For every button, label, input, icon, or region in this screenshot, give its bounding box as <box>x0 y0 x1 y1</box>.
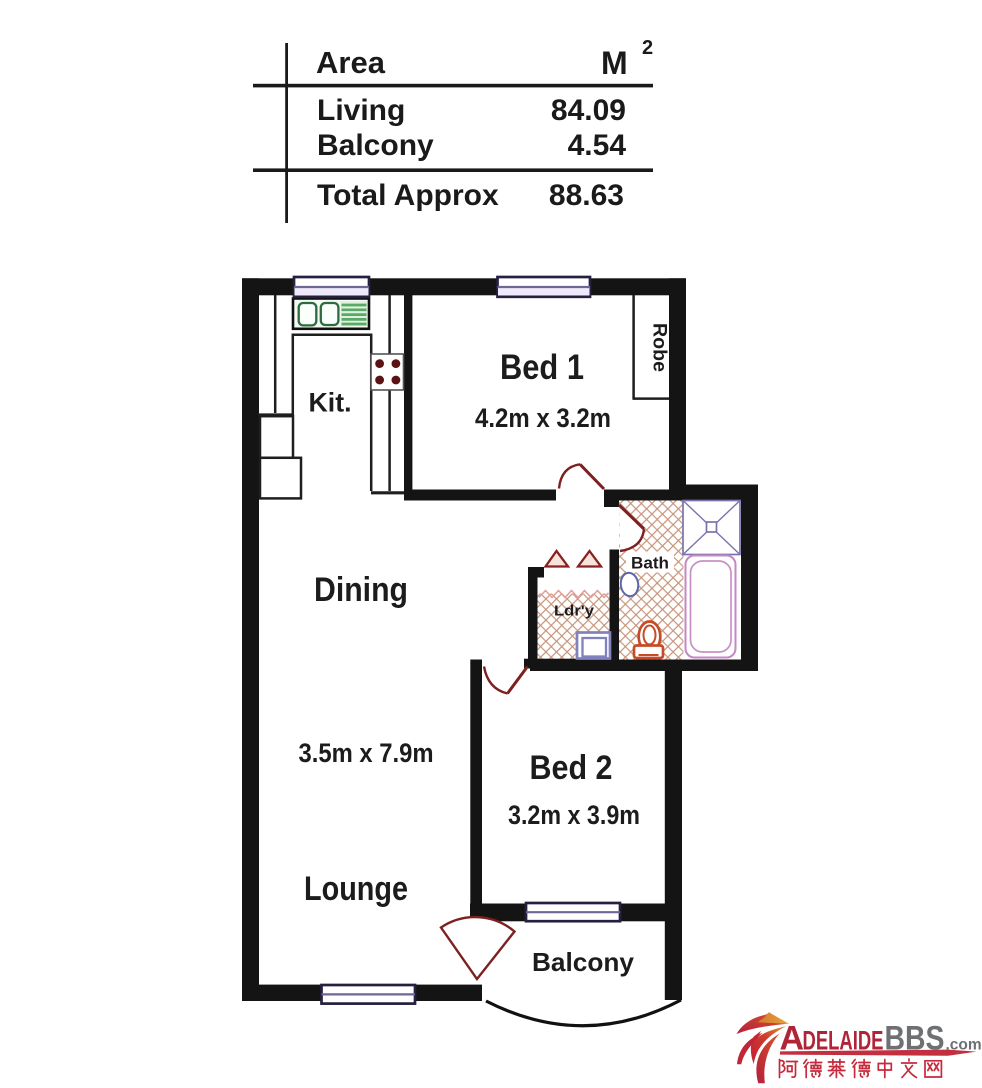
svg-text:Bed 2: Bed 2 <box>530 749 613 787</box>
svg-text:Living: Living <box>317 94 405 127</box>
svg-text:3.2m x 3.9m: 3.2m x 3.9m <box>508 800 640 830</box>
svg-text:Ldr'y: Ldr'y <box>554 604 594 620</box>
svg-text:Kit.: Kit. <box>309 388 352 418</box>
svg-text:Lounge: Lounge <box>304 870 408 908</box>
svg-text:Balcony: Balcony <box>317 129 434 162</box>
svg-text:Total Approx: Total Approx <box>317 179 499 212</box>
svg-text:Bath: Bath <box>631 555 669 573</box>
svg-text:3.5m x 7.9m: 3.5m x 7.9m <box>299 738 434 768</box>
svg-text:Robe: Robe <box>649 323 671 372</box>
svg-text:Balcony: Balcony <box>532 947 635 977</box>
svg-text:M: M <box>601 45 628 81</box>
svg-text:Bed 1: Bed 1 <box>500 348 584 387</box>
svg-text:4.54: 4.54 <box>568 129 627 162</box>
svg-text:2: 2 <box>642 37 653 59</box>
svg-text:84.09: 84.09 <box>551 94 626 127</box>
svg-text:88.63: 88.63 <box>549 179 624 212</box>
svg-text:Area: Area <box>316 45 386 80</box>
svg-text:4.2m x 3.2m: 4.2m x 3.2m <box>475 403 611 433</box>
svg-text:Dining: Dining <box>314 571 408 609</box>
